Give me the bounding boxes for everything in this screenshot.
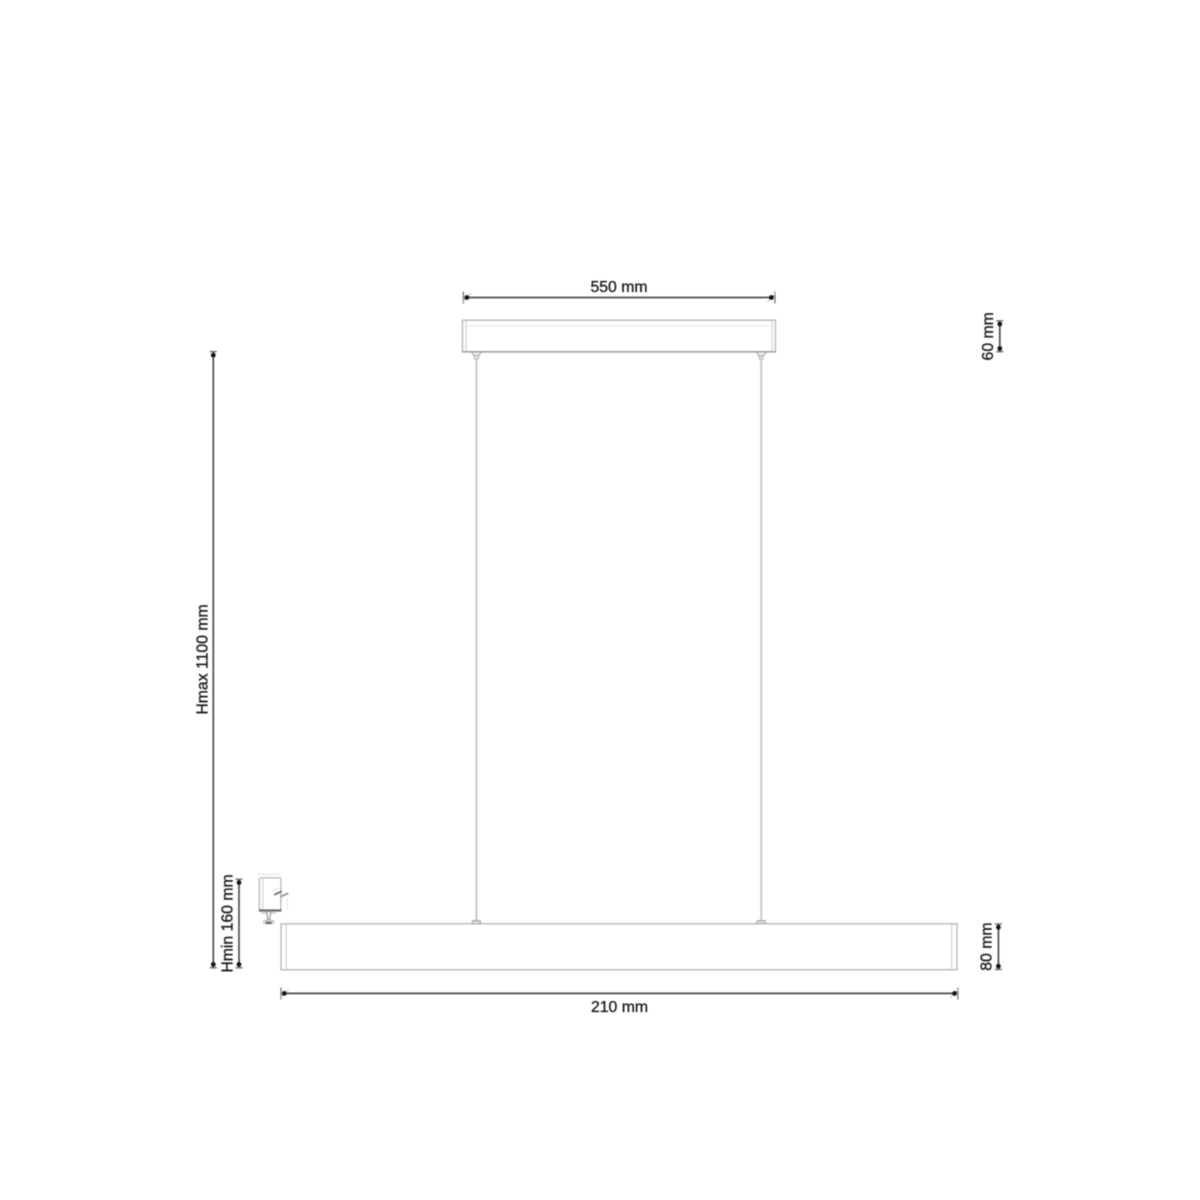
- svg-text:550 mm: 550 mm: [590, 279, 647, 296]
- svg-text:Hmax 1100 mm: Hmax 1100 mm: [195, 604, 212, 714]
- svg-text:Hmin 160 mm: Hmin 160 mm: [220, 874, 237, 972]
- svg-text:60 mm: 60 mm: [980, 312, 997, 360]
- svg-text:210 mm: 210 mm: [591, 999, 648, 1016]
- svg-text:80 mm: 80 mm: [979, 922, 996, 970]
